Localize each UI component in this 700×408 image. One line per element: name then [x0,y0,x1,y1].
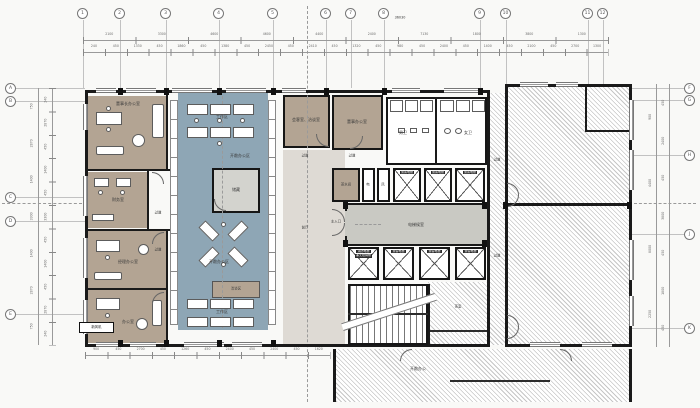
window [282,88,306,93]
dim-value: 1400 [34,166,57,174]
dim-value: 450 [455,45,477,48]
dim-value: 1300 [556,33,609,36]
corridor-hatch [490,93,505,345]
keynote-text: 新风机 [91,326,101,329]
wall [430,330,487,332]
dim-value: 450 [236,45,258,48]
label-corridor: 过道 [302,154,309,157]
room-label-pantry: 茶水间 [341,183,351,186]
grid-line [632,155,684,156]
dim-value: 450 [152,348,174,351]
dim-value: 450 [241,348,263,351]
grid-bubble: D [5,216,16,227]
column [382,88,387,95]
dim-value: 2100 [521,45,543,48]
dim-value: 450 [645,174,683,182]
dim-value: 450 [105,45,127,48]
room-label-manager: 经理办公室 [118,260,138,264]
dim-value: 1380 [214,45,236,48]
dim-value: 3800 [645,212,683,220]
dim-value: 4600 [241,33,294,36]
window [582,342,612,347]
dim-value: 7130 [398,33,451,36]
zone-label-workstation: 工作区 [216,115,228,119]
column [217,88,222,95]
axis-line [2,203,82,204]
room-label-women-wc: 女卫 [464,131,472,135]
dim-value: 240 [34,329,57,337]
dim-value: 1800 [645,287,683,295]
wall [435,97,437,165]
elevator-label: 兼无障碍梯 [355,254,372,257]
dim-value: 2870 [34,119,57,127]
dim-col-left-inner: 24028704501400450330045014004502870240 [42,88,50,345]
grid-bubble: J [684,229,695,240]
elevator: 乘客电梯 [393,168,421,202]
wall [85,169,170,171]
label-corridor: 过道 [155,211,162,214]
floor-plan: 1 2 3 4 5 6 7 8 9 10 11 12 A B C D E F G… [0,0,700,408]
wall [85,229,170,231]
dim-value: 2400 [219,348,241,351]
column [164,88,169,95]
grid-line [632,234,684,235]
dim-value: 900 [85,348,107,351]
dim-value: 450 [280,45,302,48]
zone-label-lounge: 洽谈区 [231,287,241,290]
elevator-label: 乘客电梯 [391,250,405,253]
grid-bubble: 8 [378,8,389,19]
window [444,88,480,93]
label-corridor: 过道 [494,158,501,161]
elevator: 乘客电梯 [424,168,452,202]
column [271,88,276,95]
dim-value: 2400 [433,45,455,48]
dim-value: 450 [107,348,129,351]
dim-value: 3800 [503,33,556,36]
elevator-fire: 消防电梯 兼无障碍梯 [348,247,379,280]
dim-value: 2400 [346,33,399,36]
dim-value: 2410 [302,45,324,48]
dim-value: 1800 [451,33,504,36]
dim-ticks [83,37,609,44]
dim-value: 2400 [645,136,683,144]
wall [428,284,430,345]
dim-value: 4600 [188,33,241,36]
grid-bubble: 1 [77,8,88,19]
grid-bubble: 10 [500,8,511,19]
dim-value: 1400 [477,45,499,48]
window [629,150,634,190]
column [627,202,632,209]
dim-ticks [83,49,609,56]
column [164,340,169,347]
dim-row-top-major: 2100330046004600440024007130180038001300 [83,33,608,36]
dim-value: 450 [367,45,389,48]
dim-value: 2870 [34,306,57,314]
dim-row-bottom: 90045027004501260450240045024004501620 [85,348,330,351]
dim-value: 450 [149,45,171,48]
wall [333,349,336,402]
dim-value: 1330 [127,45,149,48]
elevator: 乘客电梯 [383,247,414,280]
grid-bubble: A [5,83,16,94]
label-corridor: 过道 [349,154,356,157]
grid-bubble: 4 [213,8,224,19]
window [629,240,634,280]
dim-value: 2100 [83,33,136,36]
room-label-men-wc: 男卫 [399,131,407,135]
window [556,82,578,87]
wall [147,171,149,229]
window [83,104,88,130]
window [226,88,266,93]
window [392,88,420,93]
dim-value: 450 [411,45,433,48]
dim-col-right-inner: 450240045038004501800450 [660,84,668,347]
dim-value: 450 [285,348,307,351]
window [629,100,634,140]
grid-bubble: 9 [474,8,485,19]
window [83,238,88,278]
column [217,340,222,347]
elevator-label: 乘客电梯 [463,250,477,253]
window [96,342,118,347]
window [232,342,262,347]
dim-value: 3300 [136,33,189,36]
room-label-vent: 风 [381,183,384,186]
grid-bubble: F [684,83,695,94]
dim-value: 4400 [293,33,346,36]
room-label-office: 办公室 [122,320,134,324]
dim-value: 1400 [34,259,57,267]
zone-label-open-office: 开敞办公区 [230,154,250,158]
dim-value: 2450 [258,45,280,48]
column [478,88,483,95]
grid-bubble: 5 [267,8,278,19]
wall [585,84,587,132]
column [503,202,508,209]
dim-value: 1860 [171,45,193,48]
label-corridor: 过道 [155,248,162,251]
keynote-ahu: 新风机 [79,322,114,333]
column [343,240,348,247]
dim-value: 450 [34,283,57,291]
grid-bubble: B [5,96,16,107]
grid-bubble: C [5,192,16,203]
dim-value: 1260 [174,348,196,351]
elevator-label: 乘客电梯 [400,171,414,174]
right-wing-outline [505,84,632,347]
grid-bubble: 7 [345,8,356,19]
dim-value: 1300 [586,45,608,48]
wall [505,203,632,206]
column [118,340,123,347]
grid-bubble: 3 [160,8,171,19]
window [629,296,634,326]
wall [345,244,487,246]
grid-bubble: G [684,95,695,106]
wall [585,130,632,132]
window [530,342,560,347]
dim-value: 1320 [346,45,368,48]
grid-bubble: E [5,309,16,320]
column [271,340,276,347]
grid-bubble: 6 [320,8,331,19]
column [324,88,329,95]
dim-value: 3300 [34,212,57,220]
room-label-director: 董事办公室 [347,120,367,124]
dim-value: 1620 [308,348,330,351]
zone-label-shell-open-office: 开敞办公 [410,367,426,371]
dim-value: 450 [645,249,683,257]
dim-value: 980 [389,45,411,48]
dim-ticks [85,352,331,359]
label-main-entrance: 主入口 [331,220,341,223]
label-front-hall: 前厅 [302,226,309,229]
dim-value: 450 [645,99,683,107]
window [96,88,116,93]
axis-line [634,203,696,204]
dim-value: 450 [324,45,346,48]
room-label-finance: 财务室 [112,198,124,202]
dim-value: 450 [499,45,521,48]
grid-bubble: H [684,150,695,161]
dim-value: 2700 [130,348,152,351]
grid-bubble: 11 [582,8,593,19]
dim-value: 450 [542,45,564,48]
room-label-chairman: 董事长办公室 [116,102,140,106]
wall [629,349,632,402]
wall [88,288,168,290]
dim-value: 240 [34,96,57,104]
grid-bubble: K [684,323,695,334]
grid-line [632,88,684,89]
dim-value: 450 [34,236,57,244]
zone-label-open-office: 开敞办公区 [209,260,229,264]
elevator: 乘客电梯 [419,247,450,280]
grid-bubble: 12 [597,8,608,19]
elevator-label: 乘客电梯 [431,171,445,174]
elevator: 乘客电梯 [455,168,485,202]
dim-value: 450 [196,348,218,351]
dim-value: 240 [83,45,105,48]
elevator-label: 乘客电梯 [427,250,441,253]
elevator-label: 乘客电梯 [463,171,477,174]
window [130,342,156,347]
dim-value: 2700 [564,45,586,48]
dim-row-top-minor: 2404501330450186045013804502450450241045… [83,45,608,48]
overall-dimension: 36030 [395,16,406,19]
zone-label-workstation: 工作区 [216,310,228,314]
column [118,88,123,95]
window [520,82,548,87]
label-corridor: 过道 [494,254,501,257]
wall [166,93,168,170]
shell-open-office [333,349,632,402]
dim-value: 450 [34,189,57,197]
column [343,202,348,209]
wall [166,229,168,344]
wall [450,380,550,382]
column [482,202,487,209]
dim-value: 450 [192,45,214,48]
room-label-meeting: 会客室、洽谈室 [292,118,320,122]
wall [345,203,487,205]
room-label-elec: 电 [366,183,369,186]
elevator: 乘客电梯 [455,247,486,280]
dim-value: 2400 [263,348,285,351]
window [126,88,156,93]
column [482,240,487,247]
dim-value: 450 [645,324,683,332]
grid-bubble: 2 [114,8,125,19]
room-label-elevator-lobby: 电梯候室 [408,223,424,227]
room-label-storage: 储藏 [232,188,240,192]
room-label-tea: 茶室 [455,305,462,308]
window [83,176,88,216]
window [172,88,212,93]
dim-value: 450 [34,142,57,150]
